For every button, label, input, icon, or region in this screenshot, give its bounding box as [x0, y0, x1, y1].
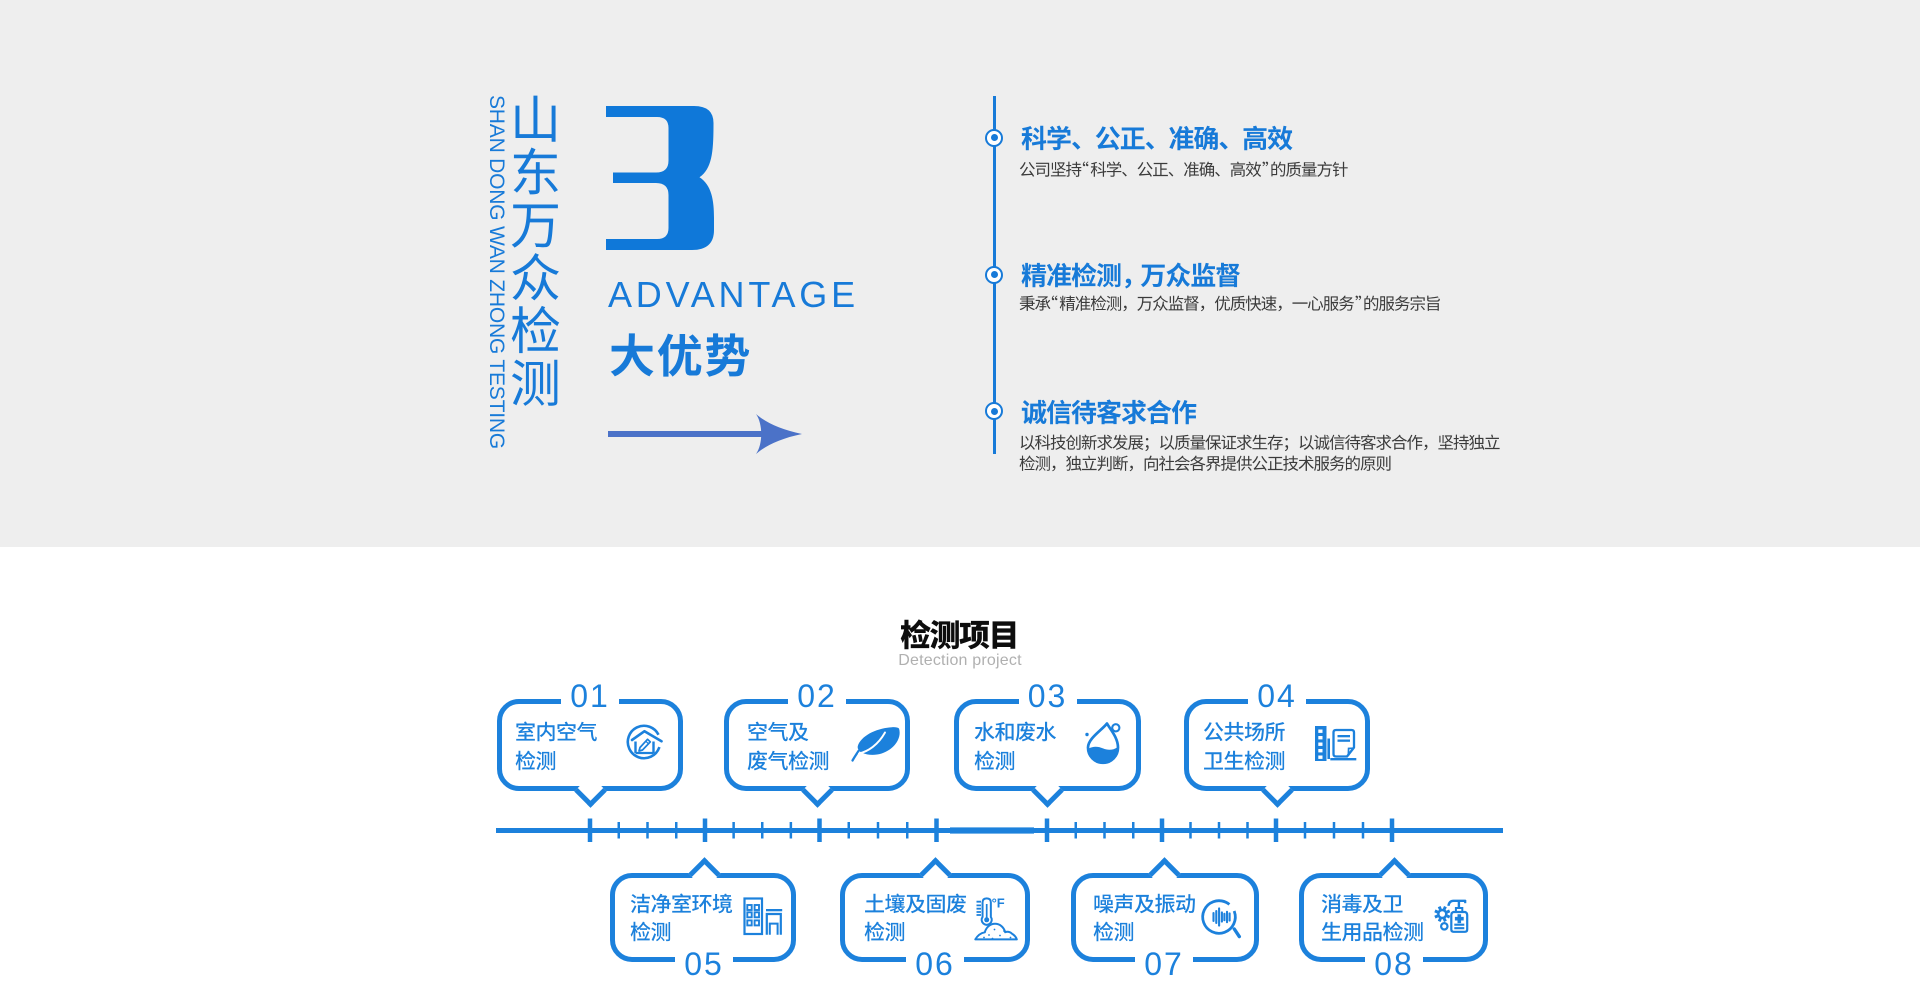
svg-text:°F: °F: [992, 896, 1005, 911]
